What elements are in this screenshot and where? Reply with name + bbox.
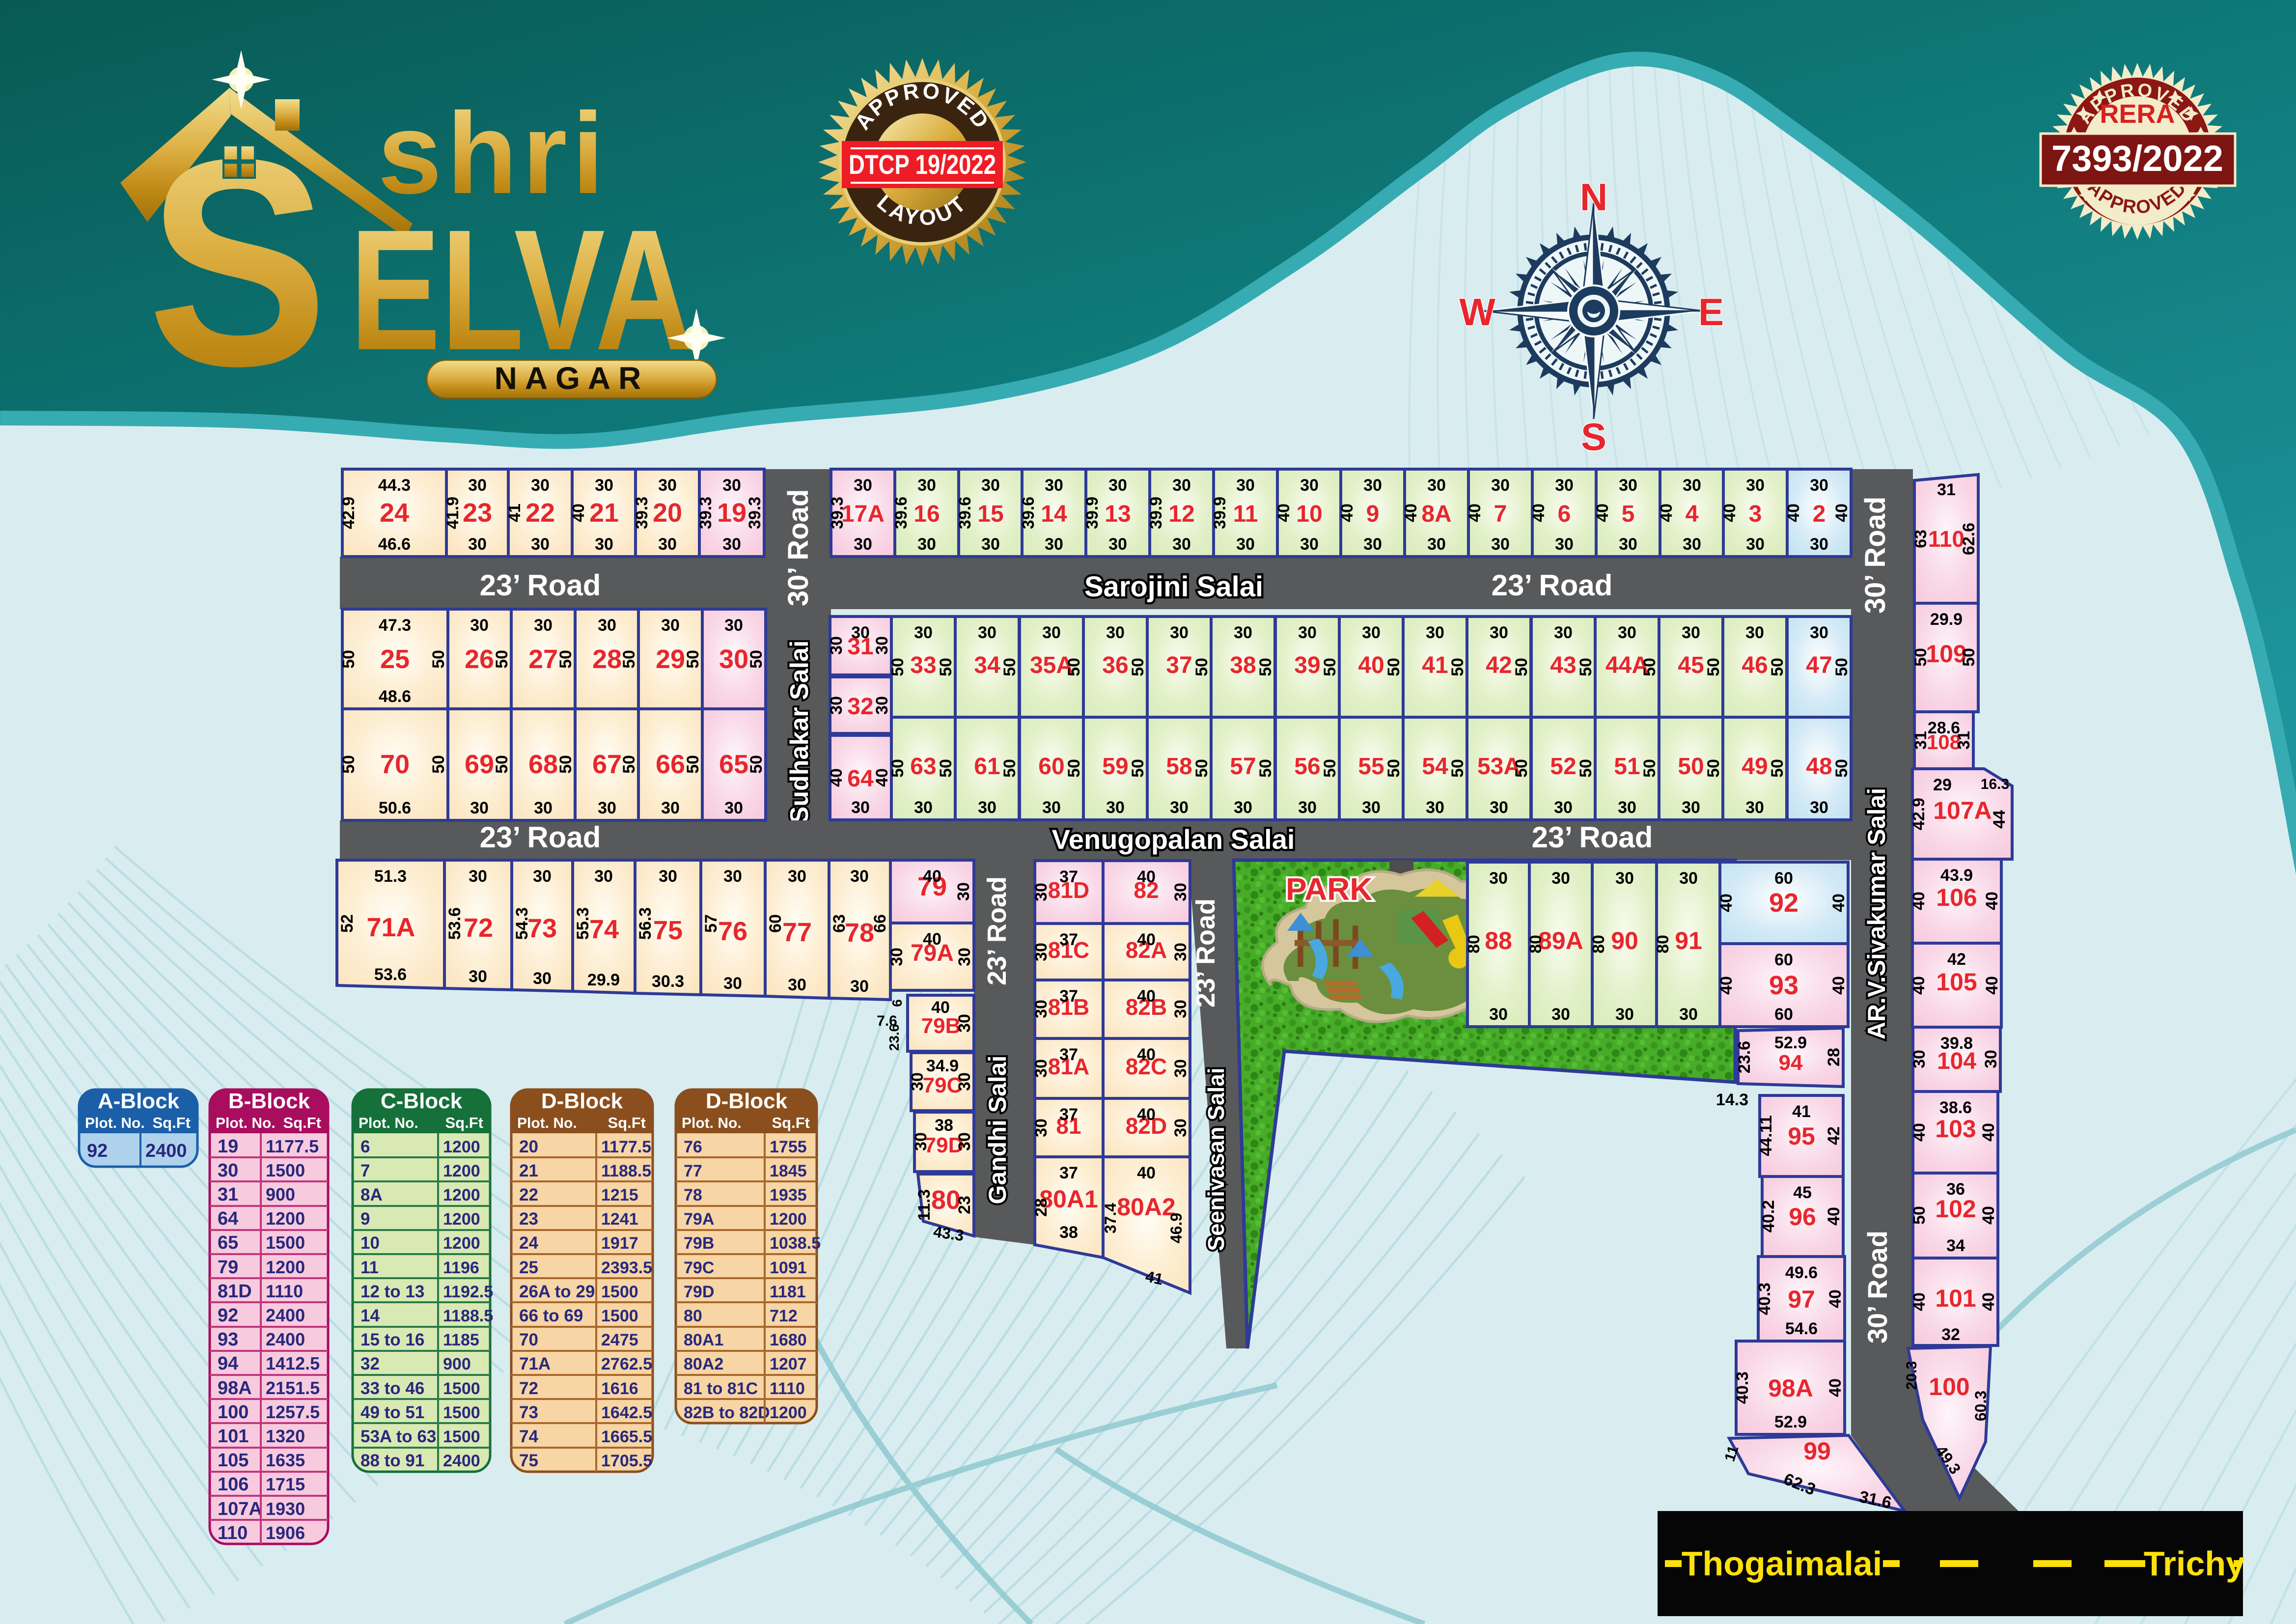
svg-text:52.9: 52.9	[1774, 1034, 1807, 1052]
svg-text:13: 13	[1105, 501, 1131, 527]
svg-text:39.3: 39.3	[633, 497, 651, 529]
svg-text:42.9: 42.9	[1909, 798, 1928, 830]
svg-text:30: 30	[788, 976, 806, 994]
svg-text:50: 50	[1256, 658, 1275, 676]
svg-text:Sq.Ft: Sq.Ft	[608, 1114, 646, 1131]
svg-text:37: 37	[1059, 1164, 1078, 1182]
svg-text:36: 36	[1102, 652, 1128, 678]
svg-text:30: 30	[1810, 535, 1828, 554]
svg-text:30: 30	[954, 882, 973, 901]
svg-text:40: 40	[1979, 1206, 1998, 1225]
svg-text:30: 30	[1363, 476, 1382, 495]
svg-text:105: 105	[1936, 968, 1977, 996]
svg-text:40: 40	[1826, 1289, 1845, 1308]
svg-text:14.3: 14.3	[1716, 1091, 1748, 1109]
svg-text:30: 30	[661, 799, 680, 817]
svg-text:30: 30	[1170, 623, 1189, 642]
svg-text:32: 32	[1941, 1325, 1960, 1344]
svg-text:50: 50	[937, 658, 955, 676]
svg-text:30: 30	[955, 1014, 974, 1033]
svg-text:30: 30	[1682, 623, 1700, 642]
svg-text:30: 30	[1551, 869, 1570, 888]
svg-text:50: 50	[1960, 648, 1978, 667]
svg-text:50: 50	[888, 759, 907, 778]
svg-text:30: 30	[724, 799, 743, 817]
svg-text:41: 41	[1422, 652, 1448, 678]
svg-text:30: 30	[723, 974, 742, 993]
svg-text:79: 79	[218, 1257, 238, 1278]
svg-text:37: 37	[1059, 930, 1078, 949]
svg-text:30: 30	[1615, 1005, 1634, 1024]
svg-text:77: 77	[684, 1162, 702, 1180]
svg-text:27: 27	[528, 644, 558, 674]
svg-text:30: 30	[595, 476, 613, 495]
svg-text:39.6: 39.6	[956, 497, 974, 529]
svg-text:30: 30	[1746, 476, 1765, 495]
svg-text:49 to 51: 49 to 51	[360, 1403, 424, 1422]
svg-text:30: 30	[873, 696, 891, 715]
svg-text:30: 30	[1746, 535, 1765, 554]
svg-text:102: 102	[1935, 1195, 1976, 1223]
svg-text:30: 30	[917, 535, 936, 554]
svg-text:Sarojini Salai: Sarojini Salai	[1084, 571, 1263, 603]
svg-text:12 to 13: 12 to 13	[360, 1282, 424, 1301]
svg-text:40: 40	[1137, 1164, 1156, 1182]
svg-text:40: 40	[1983, 976, 2001, 995]
svg-text:63: 63	[910, 754, 936, 780]
svg-text:30: 30	[1427, 535, 1446, 554]
svg-text:50: 50	[1577, 759, 1595, 778]
svg-text:26: 26	[465, 644, 494, 674]
svg-text:50: 50	[1192, 658, 1211, 676]
svg-text:30: 30	[1362, 798, 1381, 817]
svg-text:33: 33	[910, 652, 936, 678]
svg-text:36: 36	[1946, 1180, 1965, 1199]
svg-text:26A to 29: 26A to 29	[519, 1282, 595, 1301]
svg-text:10: 10	[360, 1233, 380, 1253]
svg-text:1192.5: 1192.5	[443, 1283, 493, 1301]
svg-text:23.6: 23.6	[886, 1024, 902, 1051]
svg-text:30: 30	[955, 948, 974, 966]
svg-text:92: 92	[218, 1305, 238, 1326]
svg-text:30: 30	[981, 476, 1000, 495]
svg-text:60: 60	[1774, 1005, 1793, 1024]
svg-text:80A2: 80A2	[1117, 1193, 1176, 1221]
svg-text:37: 37	[1059, 868, 1078, 886]
svg-text:30: 30	[1745, 623, 1764, 642]
svg-text:1320: 1320	[266, 1426, 305, 1446]
svg-text:72: 72	[519, 1379, 538, 1398]
svg-text:23: 23	[955, 1196, 974, 1214]
svg-text:50: 50	[1000, 759, 1019, 778]
svg-text:30: 30	[1171, 883, 1190, 901]
svg-text:57: 57	[1230, 754, 1256, 780]
svg-text:32: 32	[360, 1354, 380, 1373]
svg-text:54: 54	[1422, 754, 1448, 780]
svg-text:30: 30	[1810, 476, 1828, 495]
svg-text:1181: 1181	[770, 1283, 806, 1301]
svg-text:60: 60	[1774, 951, 1793, 969]
svg-text:30: 30	[661, 616, 680, 635]
svg-text:23.6: 23.6	[1735, 1041, 1754, 1073]
svg-text:11: 11	[1233, 501, 1258, 527]
svg-text:30: 30	[1363, 535, 1382, 554]
svg-text:30: 30	[827, 696, 846, 715]
svg-text:50: 50	[1448, 658, 1467, 676]
svg-text:105: 105	[218, 1450, 249, 1471]
svg-text:30: 30	[531, 476, 550, 495]
svg-text:30: 30	[788, 867, 806, 886]
svg-text:30: 30	[533, 969, 552, 988]
svg-text:5: 5	[1622, 501, 1635, 527]
svg-text:1196: 1196	[443, 1259, 479, 1277]
svg-text:30: 30	[1618, 798, 1636, 817]
svg-text:30: 30	[1298, 623, 1317, 642]
svg-text:30: 30	[955, 1132, 974, 1151]
svg-text:40: 40	[1910, 1292, 1929, 1311]
svg-text:39.9: 39.9	[1211, 497, 1229, 529]
svg-text:107A: 107A	[1933, 797, 1992, 824]
svg-text:30: 30	[1032, 1000, 1051, 1018]
svg-text:41: 41	[505, 504, 524, 522]
svg-text:78: 78	[684, 1186, 702, 1204]
svg-text:2400: 2400	[145, 1141, 187, 1161]
svg-text:2151.5: 2151.5	[266, 1378, 320, 1398]
svg-text:71A: 71A	[366, 913, 415, 942]
svg-text:30: 30	[1362, 623, 1381, 642]
svg-text:1200: 1200	[266, 1257, 305, 1277]
svg-text:100: 100	[1929, 1373, 1969, 1400]
svg-text:30: 30	[1619, 476, 1637, 495]
svg-text:712: 712	[770, 1307, 798, 1325]
svg-text:41: 41	[1144, 1267, 1164, 1288]
svg-text:47.3: 47.3	[379, 616, 411, 635]
svg-text:30: 30	[1555, 476, 1574, 495]
svg-text:28: 28	[1825, 1048, 1843, 1066]
svg-text:8A: 8A	[360, 1185, 383, 1204]
svg-text:70: 70	[519, 1330, 538, 1349]
svg-text:106: 106	[1936, 884, 1977, 911]
svg-text:30: 30	[1045, 535, 1063, 554]
svg-text:30: 30	[598, 616, 616, 635]
svg-text:1917: 1917	[601, 1234, 638, 1253]
svg-text:30: 30	[1106, 623, 1125, 642]
svg-text:40: 40	[1825, 1207, 1843, 1226]
svg-text:30: 30	[1032, 943, 1051, 961]
svg-text:D-Block: D-Block	[706, 1089, 788, 1113]
svg-text:1906: 1906	[266, 1523, 305, 1543]
svg-text:31: 31	[1911, 731, 1930, 750]
svg-text:NAGAR: NAGAR	[495, 361, 649, 396]
svg-text:28: 28	[592, 644, 622, 674]
svg-text:15 to 16: 15 to 16	[360, 1330, 424, 1349]
svg-text:64: 64	[218, 1208, 238, 1229]
svg-text:DTCP 19/2022: DTCP 19/2022	[849, 149, 996, 180]
svg-text:40: 40	[1137, 1105, 1156, 1124]
svg-text:30: 30	[1491, 476, 1510, 495]
svg-text:65: 65	[218, 1232, 238, 1253]
svg-text:12: 12	[1168, 501, 1194, 527]
svg-text:7: 7	[360, 1161, 370, 1180]
svg-text:99: 99	[1803, 1437, 1831, 1465]
svg-text:30: 30	[1745, 798, 1764, 817]
svg-text:39.3: 39.3	[828, 497, 847, 529]
svg-text:50.6: 50.6	[379, 799, 411, 817]
svg-text:76: 76	[718, 917, 747, 946]
svg-text:Plot. No.: Plot. No.	[85, 1115, 145, 1131]
svg-text:37: 37	[1166, 652, 1192, 678]
svg-text:15: 15	[977, 501, 1003, 527]
svg-text:49: 49	[1742, 754, 1768, 780]
svg-text:1680: 1680	[770, 1331, 807, 1349]
svg-text:50: 50	[1448, 759, 1467, 778]
svg-text:51: 51	[1614, 754, 1640, 780]
svg-text:32: 32	[847, 694, 873, 720]
svg-text:900: 900	[443, 1355, 471, 1373]
svg-text:30: 30	[598, 799, 616, 817]
svg-text:96: 96	[1789, 1203, 1816, 1231]
svg-text:44: 44	[1990, 810, 2009, 829]
svg-text:30: 30	[914, 798, 933, 817]
svg-text:50: 50	[1256, 759, 1275, 778]
svg-text:50: 50	[556, 650, 575, 669]
svg-text:98A: 98A	[1768, 1374, 1813, 1402]
svg-text:30: 30	[1106, 798, 1125, 817]
svg-text:30: 30	[851, 623, 870, 642]
svg-text:50: 50	[1768, 759, 1787, 778]
svg-text:54.6: 54.6	[1785, 1319, 1818, 1338]
svg-text:30: 30	[469, 867, 487, 886]
svg-text:Sq.Ft: Sq.Ft	[772, 1114, 810, 1131]
svg-text:37: 37	[1059, 1045, 1078, 1064]
svg-text:30: 30	[534, 616, 553, 635]
svg-text:1038.5: 1038.5	[770, 1234, 821, 1253]
svg-text:W: W	[1459, 290, 1495, 334]
svg-text:1215: 1215	[601, 1186, 638, 1204]
svg-text:46: 46	[1742, 652, 1768, 678]
svg-text:30: 30	[1172, 535, 1191, 554]
svg-text:40: 40	[1274, 504, 1293, 522]
svg-text:17A: 17A	[841, 501, 885, 527]
svg-text:19: 19	[218, 1136, 238, 1157]
svg-text:30: 30	[912, 1132, 930, 1151]
svg-text:30: 30	[722, 476, 741, 495]
svg-text:101: 101	[218, 1426, 249, 1447]
svg-text:1845: 1845	[770, 1162, 807, 1180]
svg-text:40: 40	[1826, 1378, 1845, 1397]
svg-text:50: 50	[1065, 759, 1083, 778]
svg-text:30: 30	[531, 535, 550, 554]
svg-text:23: 23	[463, 498, 492, 528]
svg-text:30: 30	[594, 867, 613, 886]
svg-text:40: 40	[1979, 1123, 1998, 1142]
svg-text:40: 40	[569, 504, 588, 522]
svg-text:90: 90	[1611, 927, 1638, 954]
svg-text:40: 40	[1910, 1123, 1929, 1142]
svg-text:80A2: 80A2	[684, 1355, 723, 1373]
svg-text:7393/2022: 7393/2022	[2051, 138, 2223, 179]
svg-text:50: 50	[1577, 658, 1595, 676]
svg-text:39.3: 39.3	[696, 497, 715, 529]
svg-text:50: 50	[1832, 658, 1851, 676]
svg-text:50: 50	[1911, 648, 1930, 667]
svg-text:1412.5: 1412.5	[266, 1353, 320, 1373]
svg-text:66: 66	[656, 750, 685, 779]
svg-text:20: 20	[519, 1137, 538, 1156]
svg-text:31: 31	[1955, 731, 1973, 750]
svg-text:30: 30	[1810, 798, 1828, 817]
svg-text:40: 40	[1338, 504, 1356, 522]
svg-text:30: 30	[1490, 798, 1508, 817]
svg-text:80A1: 80A1	[684, 1331, 723, 1349]
svg-text:80: 80	[1465, 935, 1483, 953]
svg-text:S: S	[1581, 415, 1606, 458]
svg-text:30: 30	[470, 616, 489, 635]
svg-text:11: 11	[360, 1258, 379, 1277]
svg-text:40: 40	[1784, 504, 1803, 522]
svg-text:81D: 81D	[218, 1281, 252, 1302]
svg-text:30: 30	[1982, 1050, 2000, 1068]
svg-text:40: 40	[1717, 894, 1736, 912]
svg-text:28: 28	[1032, 1198, 1051, 1217]
svg-text:40: 40	[1593, 504, 1612, 522]
svg-text:80: 80	[1654, 935, 1672, 953]
svg-text:Venugopalan Salai: Venugopalan Salai	[1052, 824, 1295, 855]
svg-text:30: 30	[827, 636, 846, 655]
svg-text:6: 6	[889, 999, 905, 1007]
svg-text:40: 40	[923, 930, 941, 949]
svg-text:50: 50	[1321, 658, 1339, 676]
svg-text:56.3: 56.3	[636, 907, 655, 940]
svg-text:1500: 1500	[601, 1283, 638, 1301]
svg-text:30’ Road: 30’ Road	[1862, 1231, 1893, 1344]
svg-text:1935: 1935	[770, 1186, 807, 1204]
svg-text:Plot. No.: Plot. No.	[517, 1115, 577, 1131]
svg-text:30: 30	[1171, 1000, 1190, 1018]
svg-text:40.2: 40.2	[1759, 1200, 1778, 1232]
svg-text:44.11: 44.11	[1757, 1115, 1775, 1156]
svg-text:80: 80	[684, 1307, 702, 1325]
svg-text:80: 80	[1526, 935, 1545, 953]
svg-text:30: 30	[1679, 1005, 1698, 1024]
svg-text:78: 78	[845, 918, 874, 948]
svg-text:1200: 1200	[770, 1210, 807, 1229]
svg-text:30: 30	[1682, 798, 1700, 817]
svg-text:93: 93	[1769, 971, 1798, 1000]
svg-text:93: 93	[218, 1329, 238, 1350]
svg-text:N: N	[1580, 175, 1607, 219]
svg-text:30: 30	[914, 623, 933, 642]
svg-text:50: 50	[1065, 658, 1083, 676]
svg-text:37: 37	[1059, 987, 1078, 1006]
svg-text:30: 30	[658, 476, 677, 495]
svg-text:30: 30	[1234, 798, 1252, 817]
svg-text:75: 75	[519, 1451, 538, 1470]
svg-text:53A to 63: 53A to 63	[360, 1427, 436, 1446]
svg-text:1500: 1500	[443, 1403, 480, 1422]
svg-text:73: 73	[527, 914, 557, 943]
svg-text:39.8: 39.8	[1940, 1034, 1973, 1053]
svg-text:1500: 1500	[601, 1307, 638, 1325]
svg-text:50: 50	[1000, 658, 1019, 676]
svg-text:48: 48	[1806, 754, 1832, 780]
svg-text:40: 40	[1717, 976, 1736, 995]
svg-text:30: 30	[1554, 623, 1573, 642]
svg-text:50: 50	[1678, 754, 1704, 780]
svg-text:46.6: 46.6	[378, 535, 411, 554]
svg-text:1091: 1091	[770, 1259, 807, 1277]
svg-text:56: 56	[1294, 754, 1320, 780]
svg-text:1177.5: 1177.5	[601, 1138, 651, 1156]
svg-text:30: 30	[1551, 1005, 1570, 1024]
svg-text:14: 14	[1041, 501, 1067, 527]
svg-text:9: 9	[360, 1209, 370, 1229]
svg-text:50: 50	[1640, 759, 1659, 778]
svg-text:30: 30	[595, 535, 613, 554]
svg-text:64: 64	[847, 766, 874, 792]
svg-text:73: 73	[519, 1403, 538, 1422]
svg-text:25: 25	[380, 644, 410, 674]
svg-text:30: 30	[1619, 535, 1637, 554]
svg-text:107A: 107A	[218, 1499, 262, 1519]
svg-text:1200: 1200	[443, 1162, 480, 1180]
svg-text:30: 30	[1234, 623, 1252, 642]
svg-text:40: 40	[1909, 976, 1928, 995]
svg-text:50: 50	[1640, 658, 1659, 676]
svg-text:Sq.Ft: Sq.Ft	[153, 1114, 191, 1131]
svg-text:22: 22	[519, 1185, 538, 1204]
svg-text:19: 19	[717, 498, 747, 528]
svg-text:30: 30	[533, 867, 552, 886]
svg-text:50: 50	[1192, 759, 1211, 778]
svg-text:50: 50	[1768, 658, 1787, 676]
svg-text:1241: 1241	[601, 1210, 638, 1229]
svg-text:65: 65	[719, 750, 748, 779]
svg-text:50: 50	[1704, 759, 1723, 778]
svg-text:3: 3	[1749, 501, 1762, 527]
svg-text:Sq.Ft: Sq.Ft	[445, 1114, 484, 1131]
svg-text:30: 30	[1171, 1059, 1190, 1078]
svg-text:40: 40	[1983, 892, 2001, 910]
svg-text:40: 40	[1979, 1292, 1998, 1311]
svg-text:50: 50	[493, 755, 511, 774]
svg-text:30: 30	[659, 867, 677, 886]
svg-text:34: 34	[974, 652, 1000, 678]
svg-text:23’ Road: 23’ Road	[982, 876, 1012, 985]
svg-text:ELVA: ELVA	[350, 194, 693, 386]
svg-text:Plot. No.: Plot. No.	[216, 1115, 276, 1131]
svg-text:29: 29	[1933, 776, 1952, 794]
svg-text:C-Block: C-Block	[381, 1089, 463, 1113]
svg-text:50: 50	[888, 658, 907, 676]
svg-text:40: 40	[1137, 987, 1156, 1006]
svg-text:69: 69	[465, 750, 494, 779]
svg-text:30’ Road: 30’ Road	[782, 489, 814, 607]
svg-text:1110: 1110	[266, 1281, 303, 1301]
svg-text:30: 30	[1171, 1119, 1190, 1137]
svg-text:66: 66	[871, 914, 889, 933]
svg-text:50: 50	[429, 755, 448, 774]
svg-text:67: 67	[592, 750, 622, 779]
svg-text:74: 74	[589, 915, 619, 944]
svg-text:1715: 1715	[266, 1474, 305, 1494]
svg-text:30: 30	[851, 798, 870, 817]
svg-text:1616: 1616	[601, 1379, 638, 1398]
svg-text:30: 30	[1108, 535, 1127, 554]
svg-text:40: 40	[1832, 504, 1851, 522]
svg-text:Thogaimalai: Thogaimalai	[1682, 1544, 1882, 1583]
svg-text:110: 110	[1928, 526, 1964, 552]
